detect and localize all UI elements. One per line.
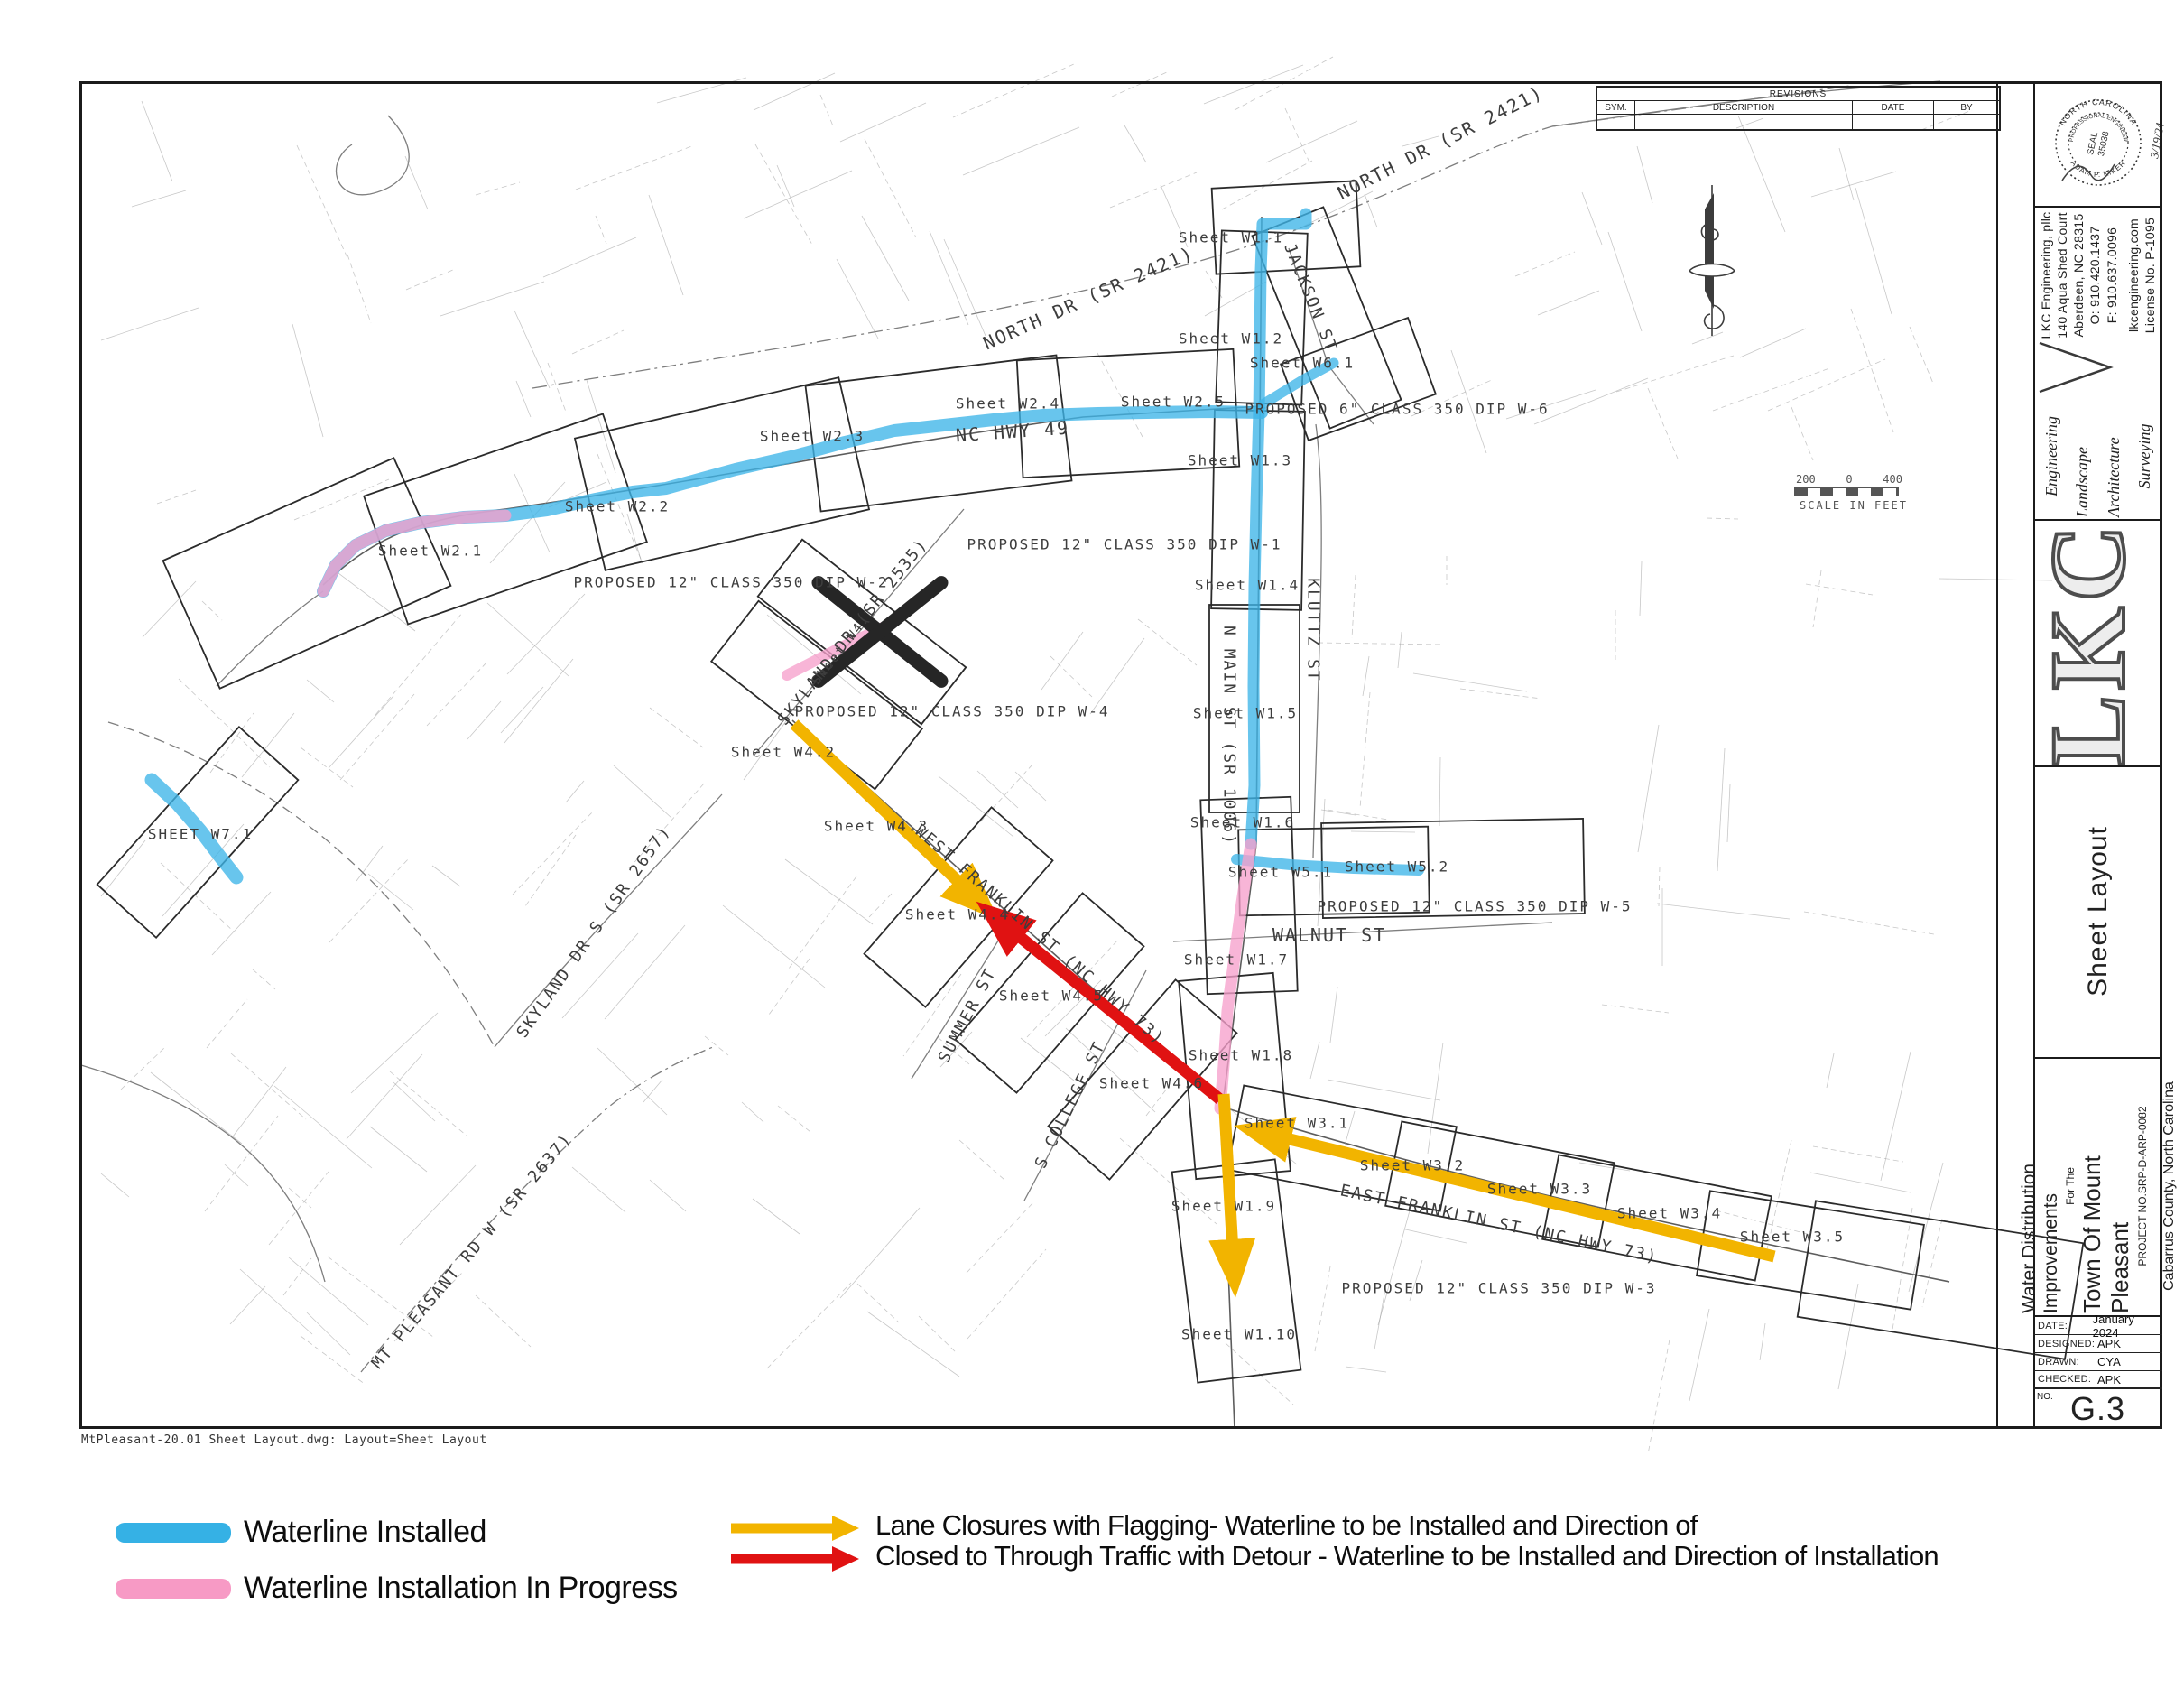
revisions-col-date: DATE [1853,101,1934,114]
firm-phone-f: F: 910.637.0096 [2104,227,2120,323]
sheet-border [79,81,2162,1429]
firm-address1: 140 Aqua Shed Court [2054,212,2070,339]
info-row-designed: DESIGNED: APK [2033,1335,2162,1353]
sheet-title: Sheet Layout [2083,826,2114,997]
date-label: DATE: [2038,1321,2093,1331]
firm-website: lkcengineering.com [2125,218,2142,332]
drawn-label: DRAWN: [2038,1357,2097,1368]
designed-value: APK [2097,1337,2121,1350]
project-title: Town Of Mount Pleasant [2078,1059,2134,1313]
drawn-value: CYA [2097,1355,2121,1368]
legend-item-road-closed: Closed to Through Traffic with Detour - … [727,1540,1939,1572]
lane-closure-arrow-swatch [727,1510,863,1541]
service-engineering: Engineering [2036,416,2067,496]
scale-bar: 200 0 400 SCALE IN FEET [1794,473,1920,512]
firm-phone-o: O: 910.420.1437 [2087,227,2103,325]
firm-address2: Aberdeen, NC 28315 [2070,214,2087,338]
scale-left: 200 [1796,473,1816,486]
service-landscape: Landscape Architecture [2067,395,2128,517]
legend-item-lane-closure: Lane Closures with Flagging- Waterline t… [727,1509,1697,1542]
legend-item-in-progress: Waterline Installation In Progress [116,1571,678,1606]
scale-mid: 0 [1846,473,1852,486]
revisions-table: REVISIONS SYM. DESCRIPTION DATE BY [1596,86,2001,131]
legend-label: Waterline Installation In Progress [244,1571,678,1606]
revisions-col-by: BY [1934,101,1999,114]
legend-item-installed: Waterline Installed [116,1515,486,1550]
scale-right: 400 [1883,473,1902,486]
sheet-title-block: Sheet Layout [2033,767,2162,1055]
info-row-date: DATE: January 2024 [2033,1317,2162,1335]
checked-label: CHECKED: [2038,1374,2097,1385]
firm-address-block: LKC Engineering, pllc 140 Aqua Shed Cour… [2033,208,2162,343]
plot-stamp: MtPleasant-20.01 Sheet Layout.dwg: Layou… [81,1433,487,1447]
plan-sheet-page: NORTH CAROLINA ADAM P. KIKER PROFESSIONA… [0,0,2184,1688]
scale-caption: SCALE IN FEET [1800,499,1920,512]
project-location: Cabarrus County, North Carolina [2161,1081,2178,1291]
firm-services-block: Engineering Landscape Architecture Surve… [2033,395,2162,517]
firm-license: License No. P-1095 [2142,218,2158,333]
project-number: PROJECT NO.SRP-D-ARP-0082 [2136,1106,2149,1266]
revisions-col-description: DESCRIPTION [1635,101,1853,114]
map-right-frame [1996,81,1998,1429]
legend-label: Waterline Installed [244,1515,486,1550]
service-surveying: Surveying [2129,424,2160,489]
sheet-number: G.3 [2033,1390,2162,1428]
project-line1: Water Distribution Improvements [2019,1059,2062,1313]
firm-name: LKC Engineering, pllc [2038,212,2054,339]
project-line2: For The [2064,1167,2077,1205]
tb-divider [2033,519,2162,521]
info-row-checked: CHECKED: APK [2033,1371,2162,1389]
project-block: Water Distribution Improvements For The … [2033,1059,2162,1313]
info-row-drawn: DRAWN: CYA [2033,1353,2162,1371]
legend-label: Lane Closures with Flagging- Waterline t… [875,1509,1697,1542]
revisions-title: REVISIONS [1597,88,1999,100]
legend-label: Closed to Through Traffic with Detour - … [875,1540,1939,1572]
checked-value: APK [2097,1373,2121,1387]
in-progress-swatch [116,1579,231,1599]
scale-bar-graphic [1794,487,1899,496]
revisions-col-sym: SYM. [1597,101,1635,114]
road-closed-arrow-swatch [727,1541,863,1572]
designed-label: DESIGNED: [2038,1339,2097,1349]
installed-swatch [116,1523,231,1543]
